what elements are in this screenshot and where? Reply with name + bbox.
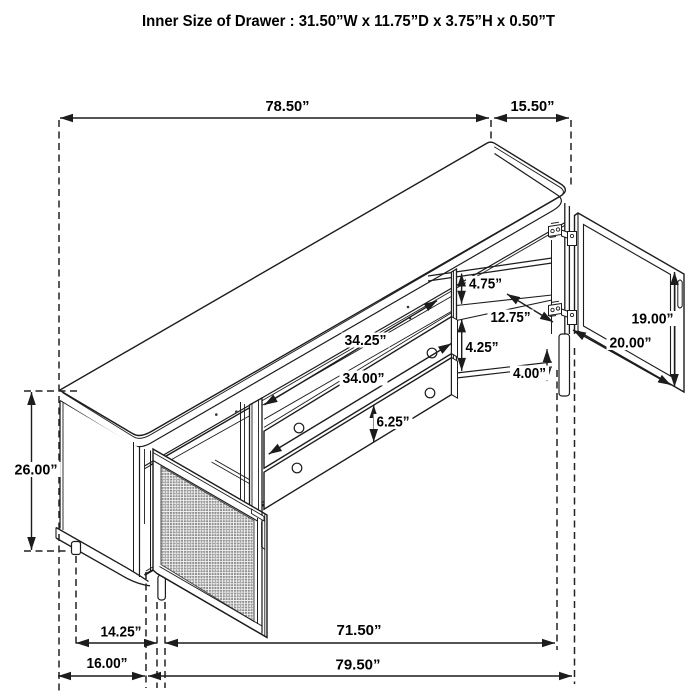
svg-text:19.00”: 19.00” bbox=[632, 311, 674, 328]
svg-text:79.50”: 79.50” bbox=[336, 657, 381, 674]
svg-text:20.00”: 20.00” bbox=[610, 335, 652, 352]
svg-text:15.50”: 15.50” bbox=[511, 98, 555, 115]
svg-text:26.00”: 26.00” bbox=[15, 462, 58, 479]
svg-text:34.00”: 34.00” bbox=[343, 370, 385, 387]
svg-text:6.25”: 6.25” bbox=[377, 414, 410, 431]
svg-text:16.00”: 16.00” bbox=[87, 655, 128, 672]
svg-text:78.50”: 78.50” bbox=[266, 98, 310, 115]
svg-text:34.25”: 34.25” bbox=[345, 332, 387, 349]
svg-text:4.75”: 4.75” bbox=[469, 276, 502, 293]
svg-text:71.50”: 71.50” bbox=[337, 622, 382, 639]
svg-text:12.75”: 12.75” bbox=[491, 309, 531, 326]
svg-text:4.25”: 4.25” bbox=[466, 339, 499, 356]
svg-text:4.00”: 4.00” bbox=[513, 365, 546, 382]
svg-text:Inner Size of Drawer : 31.50”W: Inner Size of Drawer : 31.50”W x 11.75”D… bbox=[142, 13, 555, 30]
svg-text:14.25”: 14.25” bbox=[101, 624, 142, 641]
